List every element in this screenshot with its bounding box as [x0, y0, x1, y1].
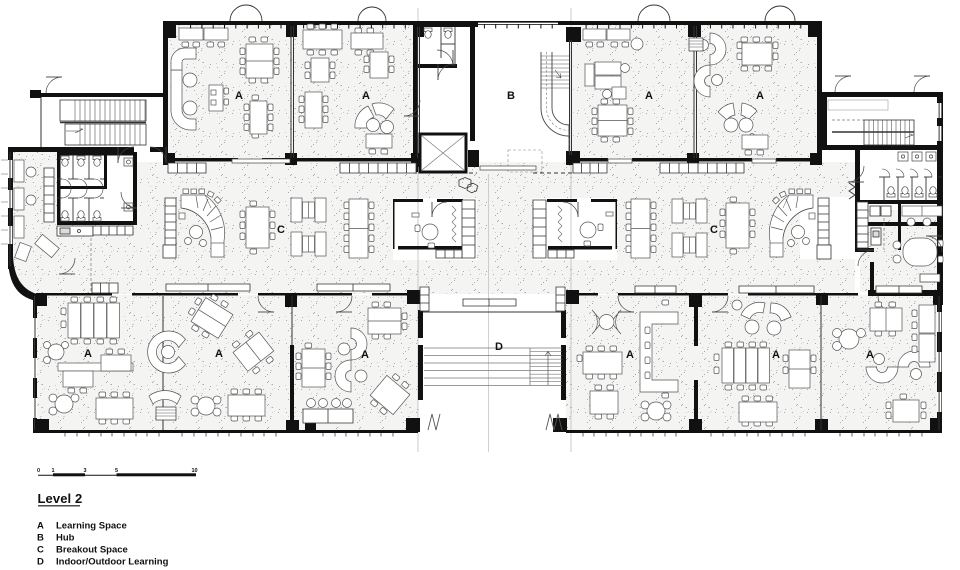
svg-text:C: C [37, 545, 44, 556]
svg-text:1: 1 [52, 468, 55, 474]
svg-text:A: A [626, 349, 634, 361]
svg-text:D: D [495, 341, 503, 353]
svg-text:A: A [37, 521, 44, 532]
svg-text:Learning Space: Learning Space [56, 521, 127, 532]
svg-text:A: A [756, 90, 764, 102]
svg-text:Breakout Space: Breakout Space [56, 545, 128, 556]
svg-text:B: B [37, 533, 44, 544]
svg-text:A: A [215, 348, 223, 360]
svg-text:A: A [645, 90, 653, 102]
svg-text:Indoor/Outdoor Learning: Indoor/Outdoor Learning [56, 557, 169, 568]
svg-text:Hub: Hub [56, 533, 75, 544]
svg-text:C: C [277, 224, 285, 236]
svg-text:10: 10 [192, 468, 198, 474]
svg-text:A: A [772, 349, 780, 361]
svg-text:B: B [507, 90, 515, 102]
svg-text:5: 5 [115, 468, 118, 474]
svg-text:A: A [84, 348, 92, 360]
svg-text:A: A [235, 90, 243, 102]
svg-text:A: A [361, 349, 369, 361]
svg-text:C: C [710, 224, 718, 236]
svg-text:A: A [362, 90, 370, 102]
svg-text:D: D [37, 557, 44, 568]
svg-text:0: 0 [37, 468, 40, 474]
svg-text:A: A [866, 349, 874, 361]
svg-text:3: 3 [84, 468, 87, 474]
svg-text:Level 2: Level 2 [38, 491, 83, 506]
